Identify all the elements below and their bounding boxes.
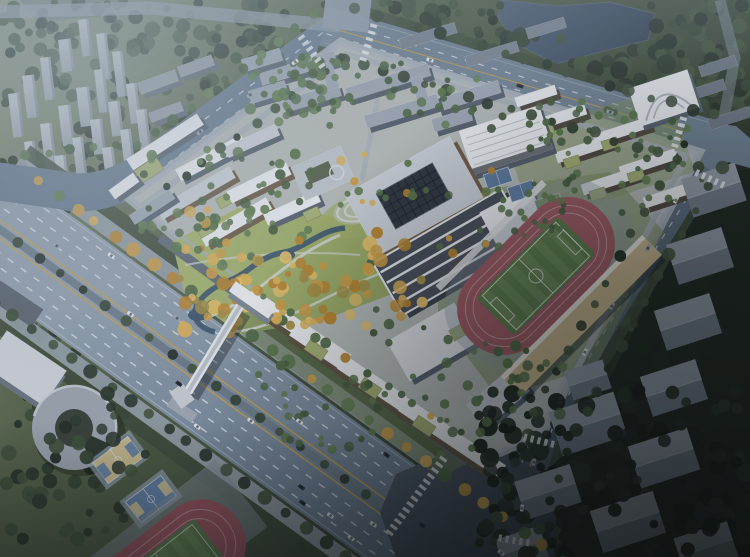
rendering-canvas	[0, 0, 750, 557]
campus-aerial-rendering: Bird's-eye architectural rendering of a …	[0, 0, 750, 557]
blue-cast	[0, 0, 750, 557]
atmosphere	[0, 0, 750, 557]
